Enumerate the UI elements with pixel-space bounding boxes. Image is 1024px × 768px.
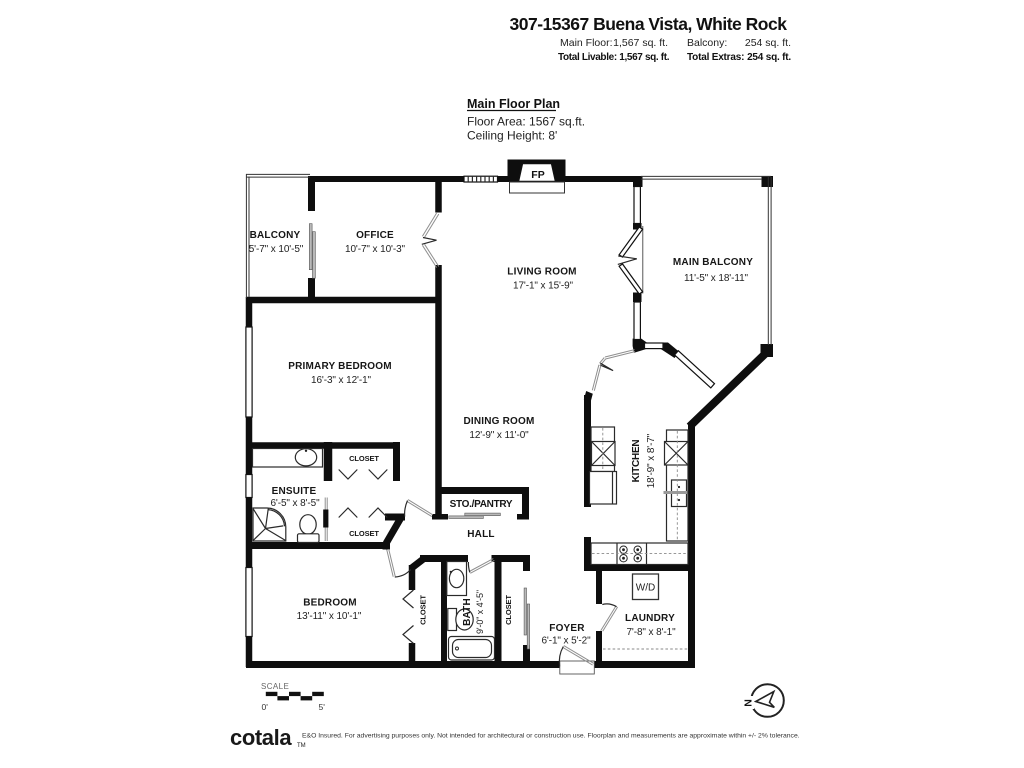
svg-text:CLOSET: CLOSET xyxy=(419,595,428,625)
svg-text:7'-8" x 8'-1": 7'-8" x 8'-1" xyxy=(626,627,676,638)
svg-text:1,567 sq. ft.: 1,567 sq. ft. xyxy=(613,37,668,49)
svg-text:MAIN BALCONY: MAIN BALCONY xyxy=(673,257,753,268)
svg-text:Total Extras:: Total Extras: xyxy=(687,52,744,63)
svg-text:LAUNDRY: LAUNDRY xyxy=(625,613,675,624)
svg-text:5': 5' xyxy=(319,702,326,712)
svg-text:CLOSET: CLOSET xyxy=(349,529,379,538)
svg-text:Balcony:: Balcony: xyxy=(687,37,727,49)
svg-text:FP: FP xyxy=(531,169,544,181)
svg-text:Main Floor Plan: Main Floor Plan xyxy=(467,97,560,111)
svg-text:CLOSET: CLOSET xyxy=(504,595,513,625)
svg-text:HALL: HALL xyxy=(467,529,494,540)
svg-text:254 sq. ft.: 254 sq. ft. xyxy=(747,52,791,63)
svg-text:6'-5" x 8'-5": 6'-5" x 8'-5" xyxy=(270,498,320,509)
svg-text:W/D: W/D xyxy=(636,583,655,594)
svg-text:11'-5" x 18'-11": 11'-5" x 18'-11" xyxy=(684,273,749,284)
svg-text:ENSUITE: ENSUITE xyxy=(272,486,317,497)
svg-text:N: N xyxy=(742,699,754,707)
svg-text:SCALE: SCALE xyxy=(261,682,289,691)
svg-text:12'-9" x 11'-0": 12'-9" x 11'-0" xyxy=(469,430,529,441)
svg-text:Main Floor:: Main Floor: xyxy=(560,37,613,49)
svg-text:BEDROOM: BEDROOM xyxy=(303,598,357,609)
svg-text:OFFICE: OFFICE xyxy=(356,230,394,241)
svg-text:LIVING ROOM: LIVING ROOM xyxy=(507,267,576,278)
svg-text:307-15367 Buena Vista, White R: 307-15367 Buena Vista, White Rock xyxy=(510,14,788,34)
svg-text:0': 0' xyxy=(262,702,269,712)
svg-text:5'-7" x 10'-5": 5'-7" x 10'-5" xyxy=(249,244,304,255)
svg-text:DINING ROOM: DINING ROOM xyxy=(463,416,534,427)
svg-text:18'-9" x 8'-7": 18'-9" x 8'-7" xyxy=(646,433,657,488)
svg-text:CLOSET: CLOSET xyxy=(349,454,379,463)
svg-text:KITCHEN: KITCHEN xyxy=(631,440,642,483)
svg-text:PRIMARY BEDROOM: PRIMARY BEDROOM xyxy=(288,361,392,372)
svg-text:E&O Insured. For advertising p: E&O Insured. For advertising purposes on… xyxy=(302,733,800,740)
svg-text:254 sq. ft.: 254 sq. ft. xyxy=(745,37,791,49)
svg-text:TM: TM xyxy=(297,743,306,749)
svg-text:17'-1" x 15'-9": 17'-1" x 15'-9" xyxy=(513,281,574,292)
svg-text:STO./PANTRY: STO./PANTRY xyxy=(450,499,513,510)
svg-text:Ceiling Height: 8': Ceiling Height: 8' xyxy=(467,129,557,143)
svg-text:cotala: cotala xyxy=(230,725,292,750)
svg-text:FOYER: FOYER xyxy=(549,623,585,634)
svg-text:9'-0" x 4'-5": 9'-0" x 4'-5" xyxy=(475,590,485,634)
svg-text:6'-1" x 5'-2": 6'-1" x 5'-2" xyxy=(541,636,591,647)
svg-text:10'-7" x 10'-3": 10'-7" x 10'-3" xyxy=(345,244,406,255)
svg-text:Floor Area: 1567 sq.ft.: Floor Area: 1567 sq.ft. xyxy=(467,115,585,129)
svg-text:13'-11" x 10'-1": 13'-11" x 10'-1" xyxy=(297,611,362,622)
svg-text:BALCONY: BALCONY xyxy=(250,230,301,241)
svg-text:BATH: BATH xyxy=(462,598,473,626)
svg-text:16'-3" x 12'-1": 16'-3" x 12'-1" xyxy=(311,375,372,386)
svg-text:Total Livable: 1,567 sq. ft.: Total Livable: 1,567 sq. ft. xyxy=(558,52,670,63)
